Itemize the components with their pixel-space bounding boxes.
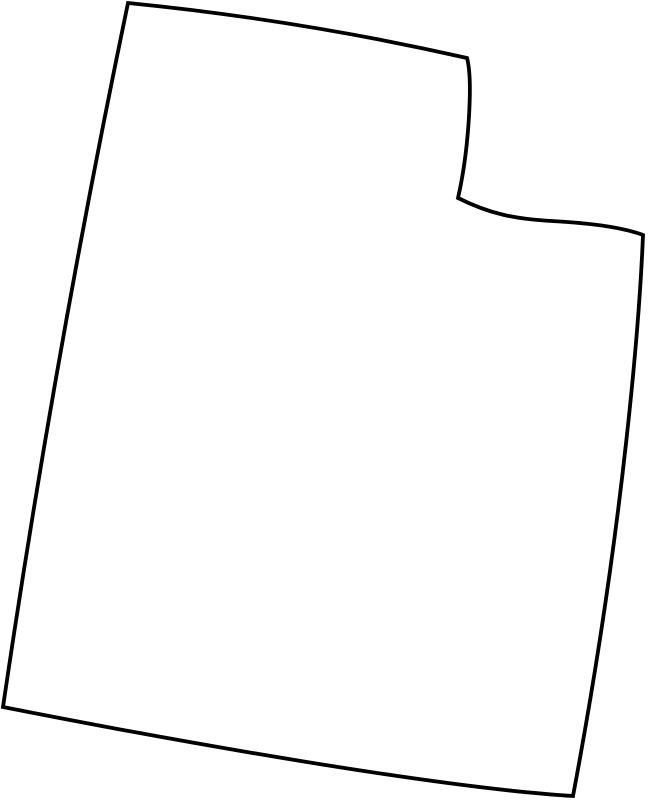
state-outline-svg	[0, 0, 649, 800]
utah-state-outline-shape	[3, 3, 643, 796]
map-canvas	[0, 0, 649, 800]
